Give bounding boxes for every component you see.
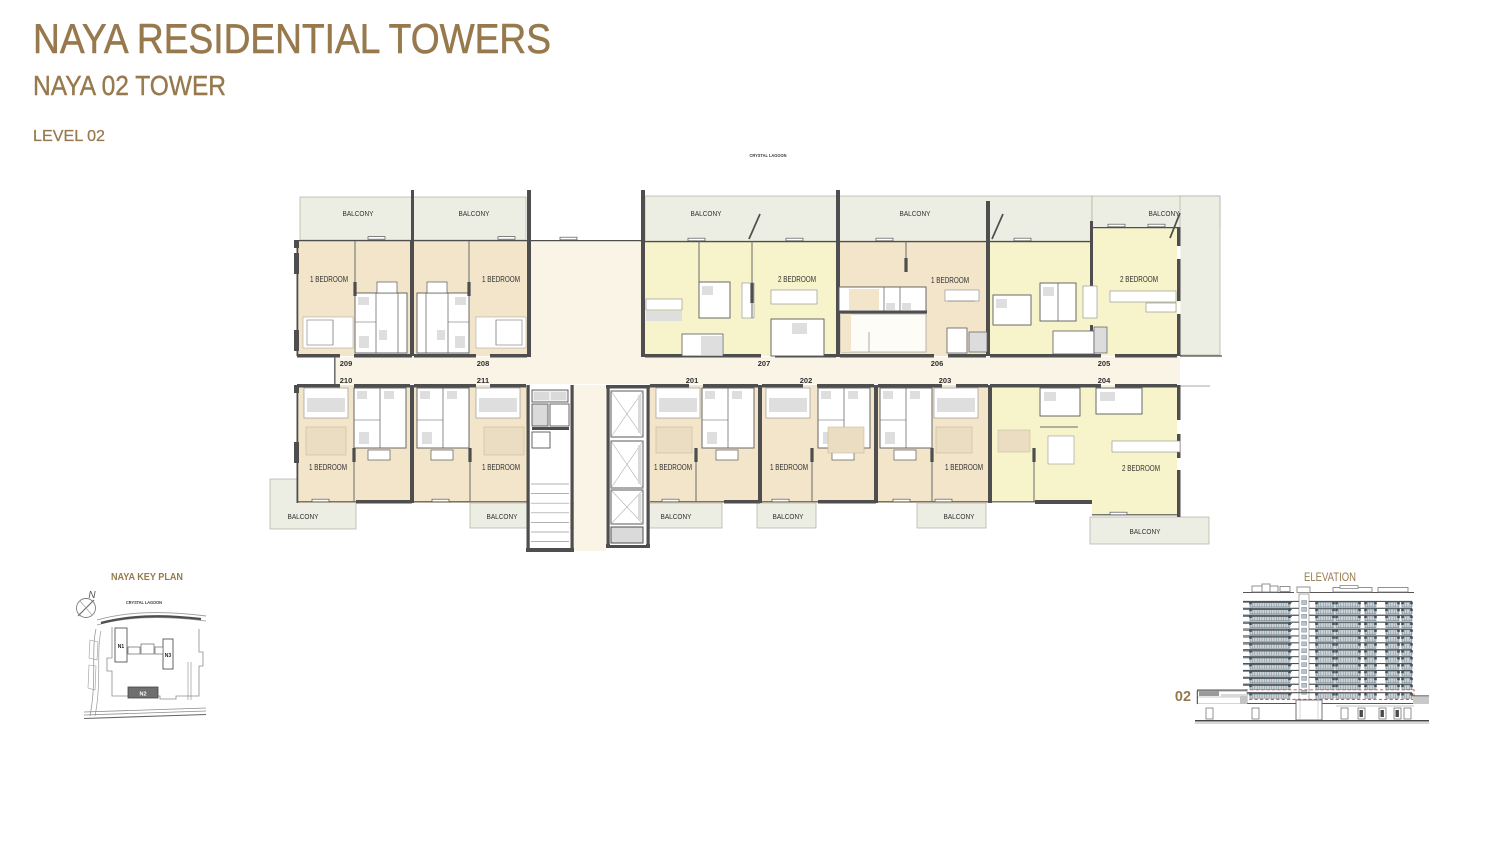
svg-text:LEVEL 02: LEVEL 02: [33, 128, 105, 145]
svg-text:2 BEDROOM: 2 BEDROOM: [778, 275, 816, 284]
svg-text:BALCONY: BALCONY: [773, 512, 804, 521]
svg-text:BALCONY: BALCONY: [1130, 527, 1161, 536]
svg-text:206: 206: [931, 359, 944, 368]
svg-text:1 BEDROOM: 1 BEDROOM: [770, 463, 808, 472]
svg-text:208: 208: [477, 359, 490, 368]
svg-text:BALCONY: BALCONY: [900, 209, 931, 218]
svg-text:204: 204: [1098, 376, 1111, 385]
svg-text:BALCONY: BALCONY: [343, 209, 374, 218]
svg-text:201: 201: [686, 376, 699, 385]
svg-text:2 BEDROOM: 2 BEDROOM: [1120, 275, 1158, 284]
svg-text:207: 207: [758, 359, 771, 368]
svg-text:1 BEDROOM: 1 BEDROOM: [931, 276, 969, 285]
svg-text:1 BEDROOM: 1 BEDROOM: [309, 463, 347, 472]
svg-text:BALCONY: BALCONY: [661, 512, 692, 521]
svg-text:CRYSTAL LAGOON: CRYSTAL LAGOON: [750, 153, 787, 159]
svg-text:210: 210: [340, 376, 353, 385]
svg-text:N3: N3: [165, 653, 172, 659]
svg-text:203: 203: [939, 376, 952, 385]
svg-text:ELEVATION: ELEVATION: [1304, 572, 1356, 584]
svg-text:1 BEDROOM: 1 BEDROOM: [482, 463, 520, 472]
svg-text:NAYA 02 TOWER: NAYA 02 TOWER: [33, 70, 226, 101]
svg-text:BALCONY: BALCONY: [1149, 209, 1180, 218]
svg-text:1 BEDROOM: 1 BEDROOM: [310, 275, 348, 284]
svg-text:202: 202: [800, 376, 813, 385]
svg-text:1 BEDROOM: 1 BEDROOM: [654, 463, 692, 472]
svg-text:1 BEDROOM: 1 BEDROOM: [482, 275, 520, 284]
svg-text:BALCONY: BALCONY: [487, 512, 518, 521]
svg-text:BALCONY: BALCONY: [459, 209, 490, 218]
svg-text:NAYA RESIDENTIAL TOWERS: NAYA RESIDENTIAL TOWERS: [33, 15, 551, 62]
svg-text:211: 211: [477, 376, 490, 385]
svg-text:N: N: [88, 590, 96, 601]
svg-text:BALCONY: BALCONY: [691, 209, 722, 218]
svg-text:N2: N2: [139, 692, 146, 698]
svg-text:BALCONY: BALCONY: [944, 512, 975, 521]
svg-text:CRYSTAL LAGOON: CRYSTAL LAGOON: [126, 600, 162, 606]
svg-text:02: 02: [1175, 689, 1191, 705]
svg-text:BALCONY: BALCONY: [288, 512, 319, 521]
svg-text:2 BEDROOM: 2 BEDROOM: [1122, 464, 1160, 473]
svg-text:209: 209: [340, 359, 353, 368]
svg-text:NAYA KEY PLAN: NAYA KEY PLAN: [111, 571, 183, 583]
svg-text:N1: N1: [118, 644, 125, 650]
svg-text:205: 205: [1098, 359, 1111, 368]
svg-text:1 BEDROOM: 1 BEDROOM: [945, 463, 983, 472]
